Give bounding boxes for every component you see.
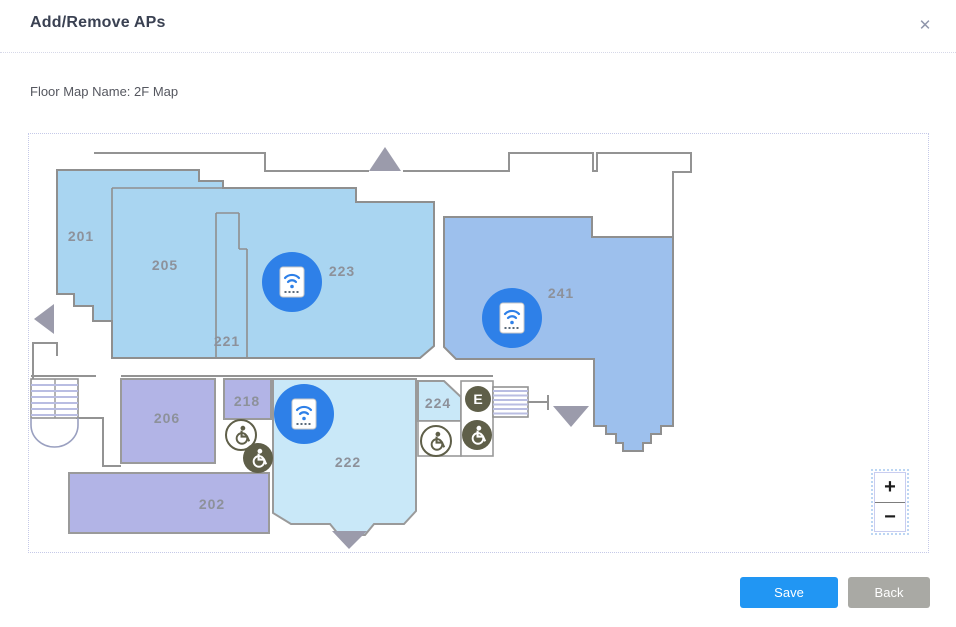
floor-map-canvas[interactable]: E 201 205 221 223 241 206 218 224 222 20… <box>28 133 929 553</box>
room-label-222: 222 <box>335 454 361 470</box>
ap-marker-room-222[interactable] <box>274 384 334 444</box>
accessible-icon <box>243 443 273 473</box>
back-button[interactable]: Back <box>848 577 930 608</box>
stairs-left <box>31 379 78 447</box>
room-201-205-221-223[interactable] <box>57 170 434 358</box>
room-label-201: 201 <box>68 228 94 244</box>
ap-marker-room-241[interactable] <box>482 288 542 348</box>
zoom-panel: + − <box>874 472 906 532</box>
page-title: Add/Remove APs <box>30 14 166 32</box>
room-label-224: 224 <box>425 395 451 411</box>
ap-marker-room-223[interactable] <box>262 252 322 312</box>
close-icon[interactable]: ✕ <box>916 17 934 35</box>
room-202[interactable] <box>69 473 269 533</box>
arrow-up-icon <box>369 147 401 171</box>
arrow-down-bottom-icon <box>332 531 367 549</box>
arrow-left-icon <box>34 304 54 334</box>
svg-text:E: E <box>473 391 482 407</box>
room-label-218: 218 <box>234 393 260 409</box>
arrow-down-right-icon <box>553 406 589 427</box>
zoom-in-button[interactable]: + <box>875 473 905 502</box>
elevator-icon: E <box>465 386 491 412</box>
room-label-223: 223 <box>329 263 355 279</box>
zoom-out-button[interactable]: − <box>875 502 905 531</box>
room-label-202: 202 <box>199 496 225 512</box>
accessible-icon <box>462 420 492 450</box>
room-label-205: 205 <box>152 257 178 273</box>
floor-plan: E 201 205 221 223 241 206 218 224 222 20… <box>29 134 928 552</box>
floor-map-name-label: Floor Map Name: 2F Map <box>30 84 178 99</box>
room-label-221: 221 <box>214 333 240 349</box>
room-label-241: 241 <box>548 285 574 301</box>
room-label-206: 206 <box>154 410 180 426</box>
accessible-icon <box>421 426 451 456</box>
header-divider <box>0 52 956 53</box>
stairs-right <box>493 387 528 417</box>
save-button[interactable]: Save <box>740 577 838 608</box>
